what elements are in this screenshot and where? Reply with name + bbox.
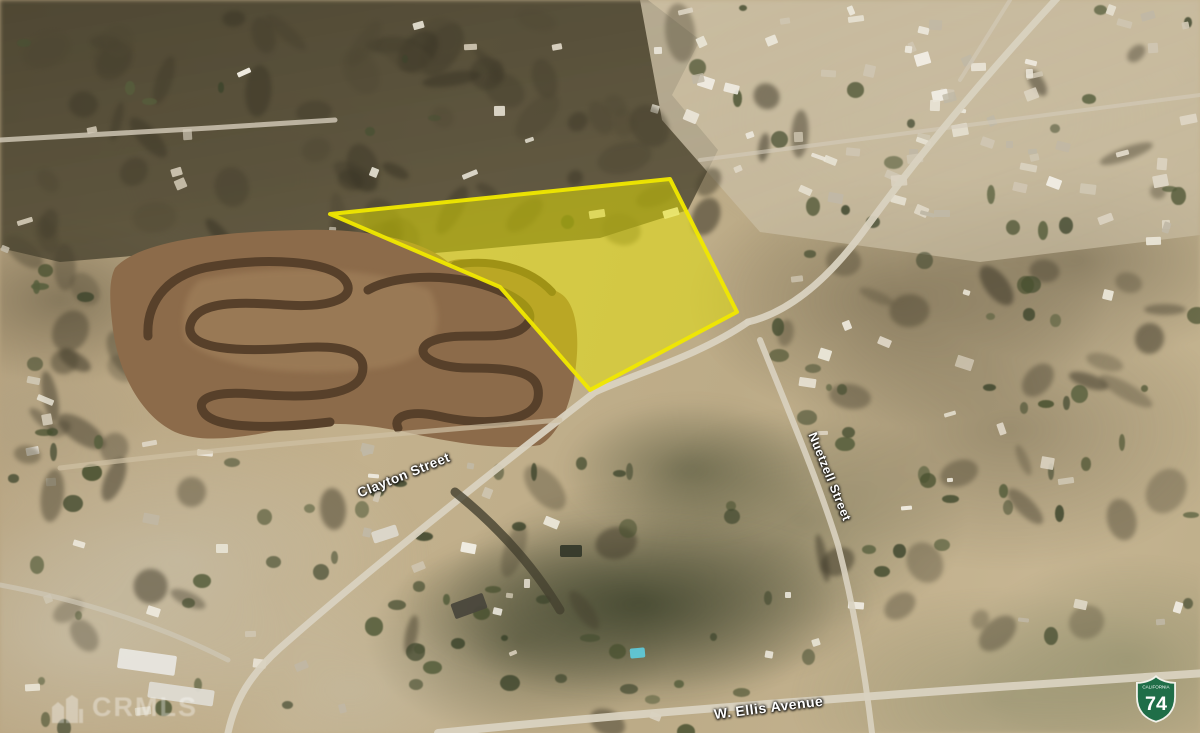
crmls-watermark: CRMLS — [50, 692, 198, 723]
shield-state-text: CALIFORNIA — [1142, 685, 1170, 690]
highway-74-shield: CALIFORNIA 74 — [1134, 674, 1178, 724]
route-shield-svg: CALIFORNIA 74 — [1134, 674, 1178, 724]
road-suburb — [960, 0, 1010, 80]
road-top-left — [0, 120, 335, 140]
road-suburb — [700, 95, 1200, 160]
road-northeast — [748, 0, 1060, 322]
shield-route-number: 74 — [1145, 693, 1167, 715]
dirt-area-light — [183, 269, 438, 372]
road-nuetzell — [760, 340, 872, 733]
driveway-shadow — [455, 492, 560, 610]
road-bottom-left — [0, 585, 228, 660]
watermark-text: CRMLS — [92, 692, 198, 723]
aerial-photo: Clayton Street Nuetzell Street W. Ellis … — [0, 0, 1200, 733]
map-overlay-svg — [0, 0, 1200, 733]
watermark-buildings-icon — [50, 693, 84, 723]
